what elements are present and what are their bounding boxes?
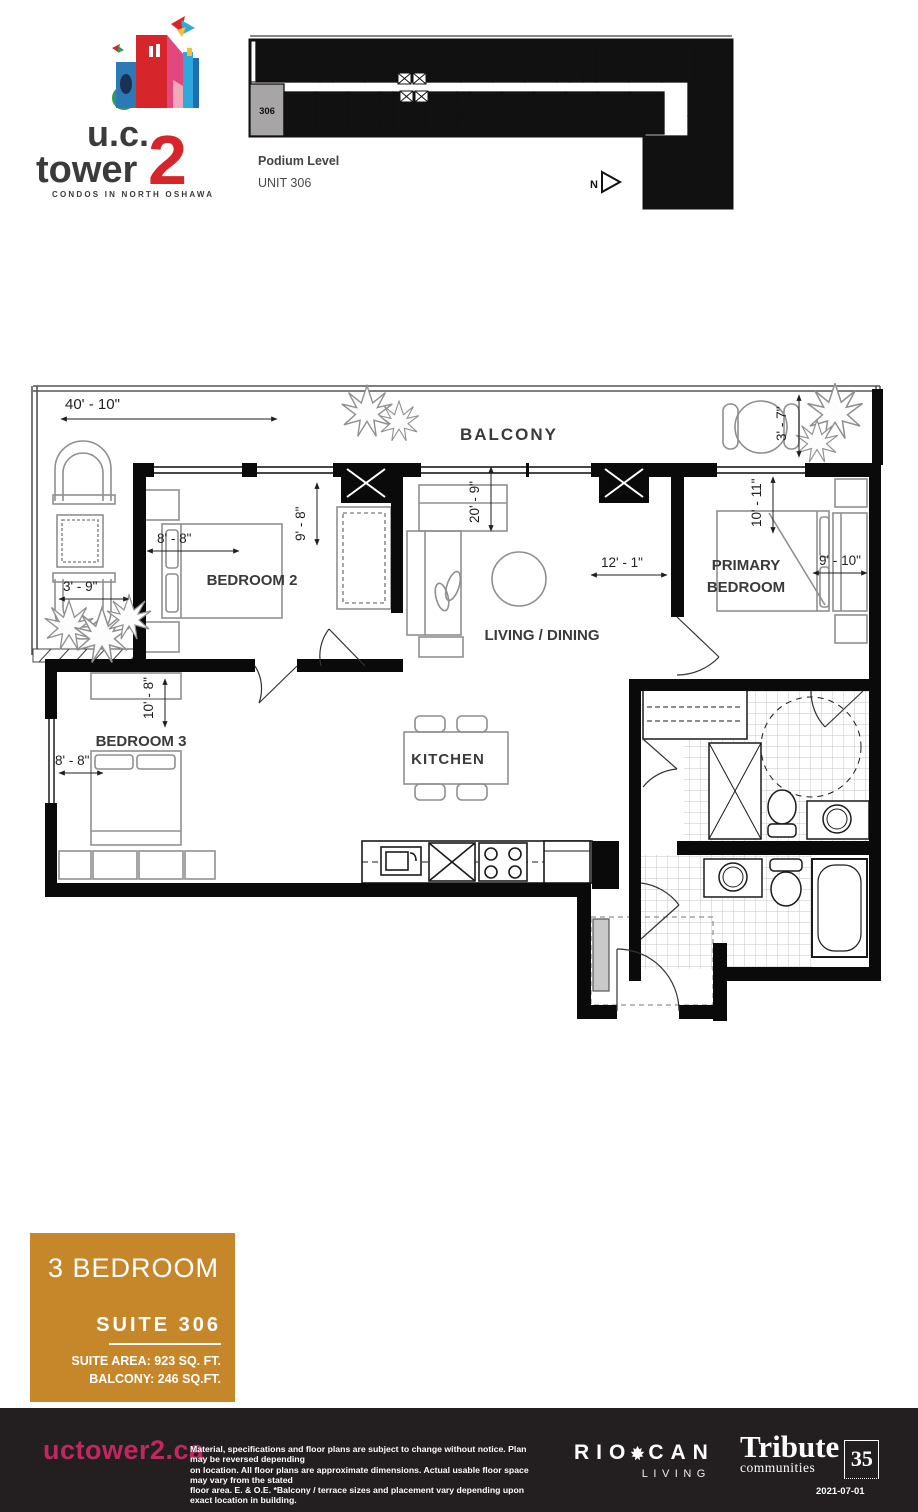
svg-text:331: 331 xyxy=(639,109,656,120)
label-living-dining: LIVING / DINING xyxy=(484,627,599,644)
website-link[interactable]: uctower2.ca xyxy=(43,1435,205,1466)
keyplan-unit: 333 xyxy=(566,92,598,134)
svg-text:325: 325 xyxy=(702,129,719,140)
suite-area: SUITE AREA: 923 SQ. FT. xyxy=(30,1353,221,1371)
keyplan-unit: 319 xyxy=(583,40,596,82)
label-primary-line2: BEDROOM xyxy=(707,579,785,596)
svg-text:317: 317 xyxy=(558,53,569,69)
svg-text:330: 330 xyxy=(658,145,674,156)
riocan-can: CAN xyxy=(648,1441,715,1465)
dim-bedroom2-depth: 9' - 8" xyxy=(293,506,308,541)
suite-type: 3 BEDROOM xyxy=(30,1233,235,1284)
svg-text:306: 306 xyxy=(259,106,275,117)
svg-text:301: 301 xyxy=(401,109,418,120)
svg-text:309: 309 xyxy=(321,53,332,69)
plant-icon xyxy=(45,384,863,663)
svg-text:311: 311 xyxy=(373,56,389,67)
svg-text:334: 334 xyxy=(542,109,559,120)
label-kitchen: KITCHEN xyxy=(411,751,485,768)
dim-primary-width: 9' - 10" xyxy=(819,553,861,568)
svg-text:303: 303 xyxy=(356,109,372,120)
keyplan-unit: 338 xyxy=(425,92,457,134)
keyplan-unit: 324 xyxy=(688,82,732,116)
svg-text:332: 332 xyxy=(606,109,622,120)
keyplan-unit: 330 xyxy=(644,136,688,162)
keyplan-unit: 322 xyxy=(662,40,695,82)
riocan-rio: RIO xyxy=(574,1441,632,1465)
keyplan-unit: 316 xyxy=(525,40,557,82)
keyplan-unit: 305 xyxy=(284,92,316,134)
keyplan-unit: 310 xyxy=(333,40,365,82)
svg-text:324: 324 xyxy=(702,95,719,106)
dim-living-depth: 20' - 9" xyxy=(467,481,482,523)
logo-brand-line1: u.c. xyxy=(87,113,149,154)
keyplan-unit: 328 xyxy=(644,184,688,208)
keyplan-unit-highlighted: 306 xyxy=(250,84,284,136)
keyplan-unit: 303 xyxy=(348,92,380,134)
keyplan-unit: 314 xyxy=(461,40,493,82)
suite-underline xyxy=(109,1343,221,1345)
keyplan-unit: 309 xyxy=(320,40,333,82)
keyplan-unit: 307 xyxy=(256,40,288,82)
svg-text:310: 310 xyxy=(341,56,357,67)
keyplan-unit: 326 xyxy=(688,150,732,184)
keyplan-caption: Podium Level UNIT 306 xyxy=(258,155,339,191)
date-stamp: 2021-07-01 xyxy=(816,1486,865,1497)
svg-text:338: 338 xyxy=(433,109,449,120)
svg-text:314: 314 xyxy=(469,56,486,67)
svg-text:304: 304 xyxy=(324,109,341,120)
keyplan-unit-label: UNIT 306 xyxy=(258,177,339,191)
label-bedroom3: BEDROOM 3 xyxy=(96,733,187,750)
tribute-35-badge: 35 xyxy=(844,1440,879,1479)
logo-brand-line2: tower xyxy=(36,149,138,191)
keyplan-unit: 317 xyxy=(557,40,570,82)
dim-bedroom3-depth: 10' - 8" xyxy=(141,677,156,719)
keyplan-unit: 329 xyxy=(644,162,688,184)
dim-right-balcony: 3' - 7" xyxy=(774,406,789,441)
keyplan-unit: 321 xyxy=(629,40,662,82)
bird-small-icon xyxy=(112,44,124,53)
keyplan-level-label: Podium Level xyxy=(258,155,339,169)
dim-left-balcony: 3' - 9" xyxy=(63,579,98,594)
riocan-living: LIVING xyxy=(574,1468,715,1480)
logo-building-illustration xyxy=(112,16,199,110)
maple-leaf-icon xyxy=(629,1445,646,1462)
svg-text:319: 319 xyxy=(584,53,595,69)
suite-info-box: 3 BEDROOM SUITE 306 SUITE AREA: 923 SQ. … xyxy=(30,1233,235,1402)
svg-text:328: 328 xyxy=(658,192,674,203)
svg-text:316: 316 xyxy=(533,56,549,67)
balcony-area: BALCONY: 246 SQ.FT. xyxy=(30,1371,221,1389)
svg-text:329: 329 xyxy=(658,170,674,181)
dim-overall-width: 40' - 10" xyxy=(65,396,120,413)
keyplan-unit: 320 xyxy=(596,40,629,82)
keyplan-unit: 334 xyxy=(534,92,566,134)
suite-number: SUITE 306 xyxy=(30,1314,235,1337)
dim-living-width: 12' - 1" xyxy=(601,555,643,570)
floorplan: BALCONY BEDROOM 2 LIVING / DINING PRIMAR… xyxy=(29,383,887,1033)
keyplan-unit: 323 xyxy=(695,40,732,82)
keyplan-unit: 315 xyxy=(493,40,525,82)
label-bedroom2: BEDROOM 2 xyxy=(207,572,298,589)
keyplan-unit: 313 xyxy=(429,40,461,82)
svg-text:307: 307 xyxy=(264,56,280,67)
keyplan-unit: 311 xyxy=(365,40,397,82)
svg-text:337: 337 xyxy=(458,105,469,121)
keyplan-unit: 325 xyxy=(688,116,732,150)
svg-text:320: 320 xyxy=(604,56,620,67)
svg-text:335: 335 xyxy=(510,109,527,120)
svg-text:327: 327 xyxy=(702,192,718,203)
keyplan-unit: 327 xyxy=(688,184,732,208)
dim-primary-depth: 10' - 11" xyxy=(749,478,764,527)
keyplan-unit: 335 xyxy=(502,92,534,134)
dim-bedroom3-width: 8' - 8" xyxy=(55,753,90,768)
svg-text:312: 312 xyxy=(405,56,421,67)
keyplan-unit: 318 xyxy=(570,40,583,82)
uc-tower2-logo: u.c. tower 2 CONDOS IN NORTH OSHAWA xyxy=(30,8,215,200)
keyplan-unit: 332 xyxy=(598,92,630,134)
logo-brand-number: 2 xyxy=(148,121,187,199)
svg-text:336: 336 xyxy=(478,109,494,120)
label-primary-line1: PRIMARY xyxy=(712,557,781,574)
riocan-living-logo: RIO CAN LIVING xyxy=(574,1441,715,1480)
keyplan-unit: 331 xyxy=(630,92,664,134)
kitchen-counter xyxy=(362,841,592,883)
dim-bedroom2-width: 8' - 8" xyxy=(157,531,192,546)
north-arrow-icon: N xyxy=(590,172,620,192)
label-balcony: BALCONY xyxy=(460,425,558,444)
keyplan-unit: 302 xyxy=(380,92,393,134)
keyplan-unit: 337 xyxy=(457,92,470,134)
tribute-logo: Tribute communities 35 xyxy=(740,1432,879,1479)
svg-text:322: 322 xyxy=(670,56,686,67)
keyplan-unit: 308 xyxy=(288,40,320,82)
svg-text:323: 323 xyxy=(705,56,721,67)
svg-text:302: 302 xyxy=(381,105,392,121)
svg-text:308: 308 xyxy=(296,56,312,67)
footer: uctower2.ca Material, specifications and… xyxy=(0,1408,918,1512)
logo-tagline: CONDOS IN NORTH OSHAWA xyxy=(52,190,214,199)
svg-text:318: 318 xyxy=(571,53,582,69)
keyplan-unit: 336 xyxy=(470,92,502,134)
svg-text:315: 315 xyxy=(501,56,518,67)
svg-text:313: 313 xyxy=(437,56,453,67)
svg-text:N: N xyxy=(590,179,598,191)
tribute-name: Tribute xyxy=(740,1432,839,1462)
elevator-icon xyxy=(398,73,428,102)
keyplan-unit: 304 xyxy=(316,92,348,134)
svg-text:326: 326 xyxy=(702,163,718,174)
svg-text:321: 321 xyxy=(637,56,654,67)
disclaimer-text: Material, specifications and floor plans… xyxy=(190,1444,538,1506)
svg-text:333: 333 xyxy=(574,109,590,120)
bird-icon xyxy=(171,16,195,37)
svg-text:305: 305 xyxy=(292,109,309,120)
